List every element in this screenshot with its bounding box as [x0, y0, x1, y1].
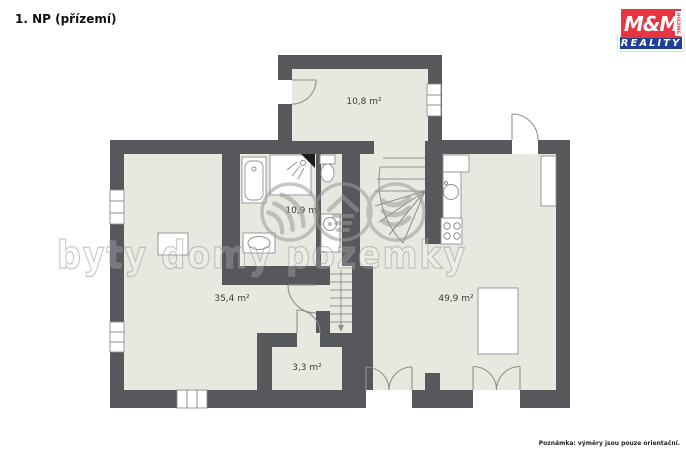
logo-red-box: M&M HOLDING	[621, 9, 681, 38]
logo-holding-text: HOLDING	[675, 11, 681, 36]
disclaimer-note: Poznámka: výměry jsou pouze orientační.	[539, 440, 680, 447]
french-door1-gap	[366, 390, 412, 408]
rear-door-gap	[512, 140, 538, 154]
pillar	[425, 373, 440, 390]
label-main-room: 49,9 m²	[438, 294, 474, 304]
window-left-upper	[110, 190, 124, 224]
logo-reality-text: REALITY	[621, 38, 681, 49]
label-living-room: 35,4 m²	[214, 294, 250, 304]
floor-plan: 10,8 m² 10,9 m² 35,4 m² 3,3 m² 49,9 m² b…	[0, 0, 686, 457]
logo-mm-text: M&M	[624, 12, 678, 36]
toilet	[320, 155, 335, 182]
label-entry-room: 3,3 m²	[292, 363, 322, 373]
hall-door-opening	[316, 285, 330, 311]
mm-reality-logo: M&M HOLDING REALITY	[618, 9, 684, 51]
window-left-lower	[110, 322, 124, 352]
window-bottom	[177, 390, 207, 408]
window-upper-room	[427, 84, 441, 116]
upper-room-door-gap	[278, 80, 292, 104]
entry-door-opening	[297, 333, 320, 347]
table	[478, 288, 518, 354]
label-upper-room: 10,8 m²	[346, 97, 382, 107]
stair-opening-floor	[374, 141, 425, 155]
french-door2-gap	[473, 390, 520, 408]
rear-door-arc	[512, 114, 538, 140]
floor-plan-page: 1. NP (přízemí) M&M HOLDING REALITY	[0, 0, 686, 457]
stair-hall-wall	[425, 154, 443, 244]
tall-cabinet	[541, 156, 556, 206]
kitchen-sink	[444, 185, 459, 200]
watermark-text: byty domy pozemky	[57, 233, 467, 277]
bathtub	[242, 157, 266, 203]
